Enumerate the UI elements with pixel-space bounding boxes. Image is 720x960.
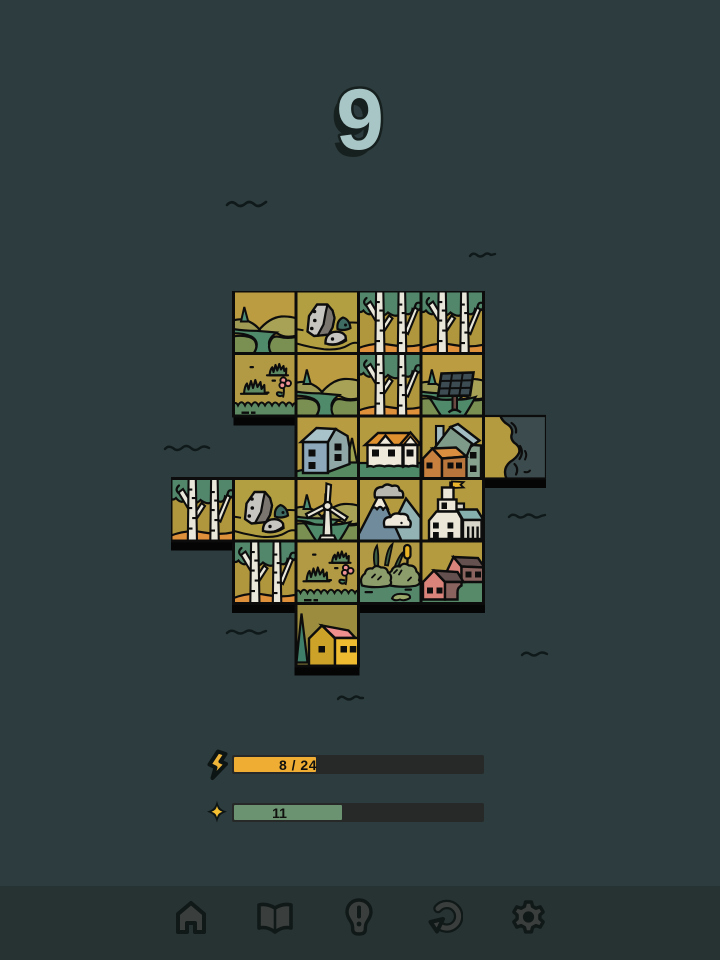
svg-text:9: 9 bbox=[336, 72, 384, 168]
